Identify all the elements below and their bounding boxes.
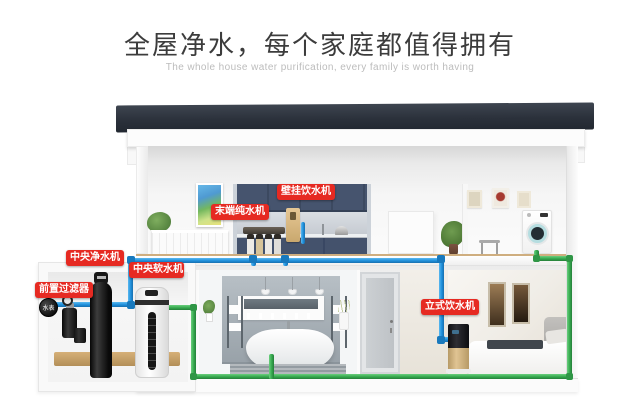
picture-frame <box>492 188 509 208</box>
bed-throw <box>487 340 543 349</box>
softener-band <box>135 300 169 305</box>
callout-central-purifier: 中央净水机 <box>66 250 124 266</box>
bathroom-vase <box>339 312 349 330</box>
pipe-green-bottom <box>191 374 572 379</box>
callout-text: 中央净水机 <box>70 252 120 263</box>
page-subtitle: The whole house water purification, ever… <box>0 62 640 73</box>
hallway-door-panel <box>366 278 394 368</box>
pipe-joint <box>533 255 540 262</box>
water-meter-label: 水表 <box>42 303 54 312</box>
central-purifier-valve-label <box>97 276 106 279</box>
callout-text: 前置过滤器 <box>39 284 89 295</box>
picture-frame <box>467 190 482 208</box>
callout-terminal-purifier: 末端纯水机 <box>211 204 269 220</box>
pipe-joint <box>281 255 289 263</box>
bathroom-mirror-panel <box>244 299 318 309</box>
pipe-joint <box>127 301 135 309</box>
washing-machine-door <box>528 224 547 243</box>
laundry-stool-leg <box>496 243 498 254</box>
dining-plant <box>147 212 171 232</box>
wall-dispenser-screen <box>290 212 296 220</box>
washing-machine-knob <box>527 213 531 217</box>
callout-text: 壁挂饮水机 <box>281 186 331 197</box>
callout-wall-dispenser: 壁挂饮水机 <box>277 184 335 200</box>
central-purifier-tank <box>90 282 112 378</box>
bedroom-picture <box>512 283 530 324</box>
standing-dispenser-base <box>446 369 471 373</box>
standing-dispenser-screen <box>452 330 459 334</box>
interior-door-panel <box>388 211 434 254</box>
door-keyhole <box>390 328 392 333</box>
towel-rack <box>227 296 243 348</box>
callout-central-softener: 中央软水机 <box>129 262 184 278</box>
laundry-stool-leg <box>481 243 483 254</box>
pipe-joint <box>566 255 573 262</box>
bathroom-plant-pot <box>206 313 213 322</box>
callout-text: 末端纯水机 <box>215 206 265 217</box>
callout-text: 中央软水机 <box>133 264 183 275</box>
softener-salt-window <box>148 312 156 370</box>
pipe-joint <box>190 373 197 380</box>
bedroom-picture <box>488 282 506 327</box>
softener-display <box>145 290 158 296</box>
page-title: 全屋净水，每个家庭都值得拥有 <box>0 25 640 62</box>
pipe-joint <box>566 373 573 380</box>
kettle <box>335 226 348 235</box>
pipe-joint <box>249 255 257 263</box>
bathroom-toiletries <box>247 313 315 319</box>
promo-poster: 全屋净水，每个家庭都值得拥有 The whole house water pur… <box>0 0 640 402</box>
roof <box>116 103 594 133</box>
pipe-joint <box>437 336 445 344</box>
callout-standing-dispenser: 立式饮水机 <box>421 299 479 315</box>
kitchen-faucet <box>322 224 324 235</box>
foundation-slab <box>136 378 578 392</box>
door-handle <box>390 320 393 323</box>
bathtub <box>246 329 334 369</box>
washing-machine-display <box>540 213 548 217</box>
roof-fascia <box>127 129 585 147</box>
pipe-green-right-riser <box>567 256 572 378</box>
callout-text: 立式饮水机 <box>425 301 475 312</box>
pre-filter-canister <box>74 328 86 343</box>
pipe-joint <box>190 304 197 311</box>
pipe-joint <box>437 255 445 263</box>
standing-dispenser-bottom <box>448 348 469 370</box>
water-meter-badge: 水表 <box>39 298 58 317</box>
callout-pre-filter: 前置过滤器 <box>35 282 93 298</box>
house-wall-left <box>136 146 148 254</box>
standing-dispenser-top <box>448 324 469 348</box>
undersink-filter-tray <box>243 227 285 234</box>
pipe-green-left-riser <box>191 305 196 379</box>
pipe-blue-wall-dispenser <box>301 222 305 244</box>
bathroom-vase-grass <box>338 300 350 312</box>
pipe-green-tub-branch <box>269 354 274 379</box>
picture-frame <box>517 191 531 208</box>
